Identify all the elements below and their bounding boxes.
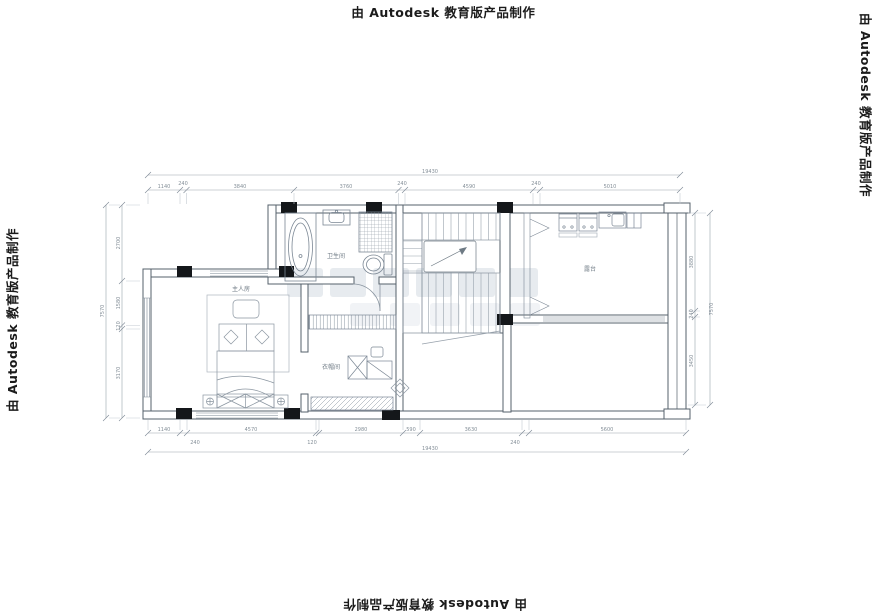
window-west-wall [143,298,151,397]
dim-line-top [148,175,680,190]
cad-floorplan-sheet: 由 Autodesk 教育版产品制作 由 Autodesk 教育版产品制作 由 … [0,0,878,616]
dim-bottom-seg: 3630 [465,427,478,433]
dim-top-seg: 3760 [340,184,353,190]
column [281,202,297,213]
washing-machine-icon-1 [559,214,577,237]
dim-left-seg: 2700 [116,237,122,250]
wall-closet-east [396,205,403,411]
appliance-label-placeholder [559,233,577,237]
pilaster-cap-bottom [664,409,690,419]
dim-top-seg: 1140 [158,184,171,190]
dim-top-seg: 240 [178,181,188,187]
stair-run-top [422,213,500,240]
room-label-bathroom: 卫生间 [327,252,345,260]
dim-bottom-seg: 5600 [601,427,614,433]
dim-left-seg: 3170 [116,367,122,380]
dim-top-seg: 240 [531,181,541,187]
dim-bottom-total: 19430 [422,446,438,452]
washing-machine-icon-2 [579,214,597,237]
stair-run-left [403,240,422,273]
wall-stair-east [500,205,510,333]
closet-cabinet-south [311,397,393,410]
room-label-master-bedroom: 主人房 [232,285,250,293]
closet-cabinet-north [309,315,396,329]
window-south-bedroom [196,412,278,418]
column [176,408,192,419]
dim-bottom-seg: 4570 [245,427,258,433]
terrace-fixtures [559,212,641,237]
column [366,202,382,213]
wall-bedroom-east-lower [301,394,308,412]
bed-icon [217,324,274,408]
column [497,202,513,213]
room-label-closet: 衣帽间 [322,363,340,371]
shower-area [359,212,392,252]
column [284,408,300,419]
autodesk-watermark-top: 由 Autodesk 教育版产品制作 [351,2,535,21]
window-terrace-middle [543,316,665,322]
dim-bottom-seg: 1140 [158,427,171,433]
dim-top-seg: 240 [397,181,407,187]
nightstand-right [274,395,288,408]
wall-bathroom-south-left [268,277,354,284]
stair-run-bottom [422,273,500,333]
tv-stool-icon [233,300,259,318]
dim-bottom-sub: 240 [190,440,200,446]
dim-bottom-sub: 240 [510,440,520,446]
dim-top-total: 19430 [422,169,438,175]
wall-lower-room-west [503,322,511,412]
dim-right-seg: 3880 [689,256,695,269]
column [382,410,400,420]
dim-top-seg: 3840 [234,184,247,190]
wardrobe-unit [348,347,392,379]
floorplan-drawing: 19430 1140 240 3840 3760 240 4590 240 50… [0,0,878,616]
dim-left-seg: 120 [116,321,122,331]
laundry-cabinet [627,213,641,228]
autodesk-watermark-right: 由 Autodesk 教育版产品制作 [857,13,876,197]
dim-left-seg: 1580 [116,297,122,310]
window-bedroom-north [210,270,268,276]
dim-right-seg: 240 [689,309,695,319]
dim-bottom-sub: 120 [307,440,317,446]
autodesk-watermark-bottom: 由 Autodesk 教育版产品制作 [343,596,527,615]
nightstand-left [203,395,217,408]
column [177,266,192,277]
bedroom-furniture [203,295,289,408]
dim-right-total: 7570 [709,303,715,316]
dim-left-total: 7570 [100,305,106,318]
wall-bedroom-east-upper [301,284,308,352]
dim-right-seg: 3450 [689,355,695,368]
dim-top-seg: 4590 [463,184,476,190]
dim-top-seg: 5010 [604,184,617,190]
casement-symbol-upper [530,219,549,237]
pilaster-cap-top [664,203,690,213]
room-label-terrace: 露台 [584,265,596,273]
closet-fixtures [309,315,409,410]
autodesk-watermark-left: 由 Autodesk 教育版产品制作 [2,228,21,412]
laundry-sink-counter [599,212,626,228]
dim-bottom-seg: 590 [406,427,416,433]
dim-bottom-seg: 2980 [355,427,368,433]
appliance-label-placeholder [579,233,597,237]
glass-partition-stair-terrace [524,213,549,318]
